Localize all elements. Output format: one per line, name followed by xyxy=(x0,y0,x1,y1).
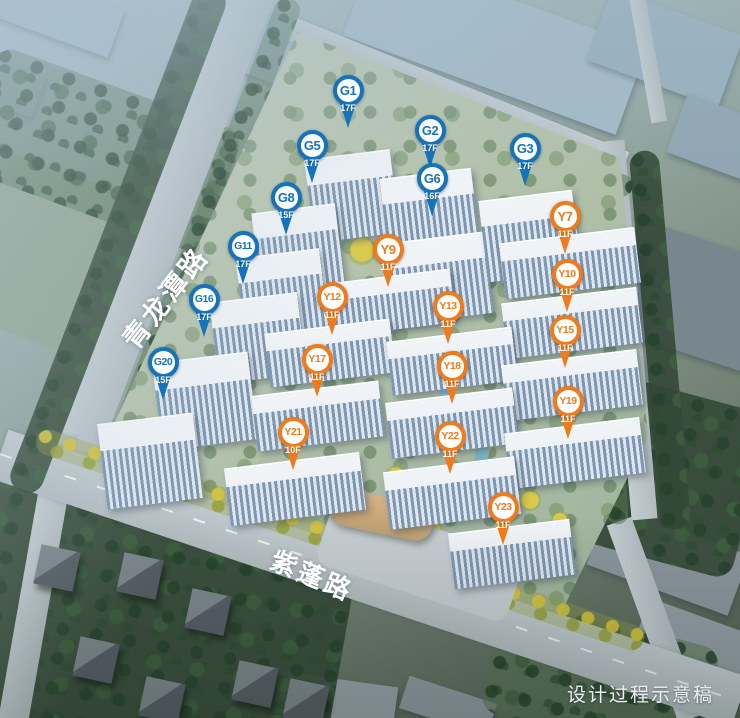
pin-floor-label: 16F xyxy=(414,192,450,201)
map-pin-y10[interactable]: Y1011F xyxy=(549,259,585,290)
map-pin-y15[interactable]: Y1511F xyxy=(547,315,583,346)
city-tower xyxy=(184,588,231,635)
pin-building-label: Y17 xyxy=(308,354,325,365)
map-pin-y21[interactable]: Y2110F xyxy=(275,417,311,448)
pin-bubble: Y7 xyxy=(550,201,581,232)
pin-bubble: G6 xyxy=(417,163,448,194)
map-pin-g3[interactable]: G317F xyxy=(507,133,543,164)
pin-building-label: G5 xyxy=(304,139,320,152)
pin-building-label: Y22 xyxy=(441,431,458,442)
map-pin-g6[interactable]: G616F xyxy=(414,163,450,194)
pin-floor-label: 15F xyxy=(145,376,181,385)
map-pin-g5[interactable]: G517F xyxy=(294,130,330,161)
pin-floor-label: 11F xyxy=(370,263,406,272)
pin-floor-label: 11F xyxy=(547,230,583,239)
pin-bubble: G16 xyxy=(189,284,220,315)
map-pin-g8[interactable]: G815F xyxy=(268,182,304,213)
pin-building-label: G16 xyxy=(195,294,213,305)
pin-floor-label: 17F xyxy=(412,144,448,153)
pin-building-label: Y15 xyxy=(556,325,573,336)
pin-floor-label: 10F xyxy=(275,446,311,455)
city-tower xyxy=(116,552,163,599)
city-roof xyxy=(0,0,125,58)
pin-floor-label: 11F xyxy=(485,521,521,530)
pin-bubble: Y17 xyxy=(302,344,333,375)
pin-bubble: G5 xyxy=(297,130,328,161)
pin-building-label: Y13 xyxy=(439,301,456,312)
pin-floor-label: 11F xyxy=(434,380,470,389)
pin-bubble: G20 xyxy=(148,347,179,378)
map-pin-g1[interactable]: G117F xyxy=(330,75,366,106)
map-pin-y13[interactable]: Y1311F xyxy=(430,291,466,322)
pin-building-label: Y10 xyxy=(558,269,575,280)
pin-floor-label: 17F xyxy=(330,104,366,113)
pin-bubble: G11 xyxy=(228,231,259,262)
pin-bubble: Y19 xyxy=(553,386,584,417)
pin-bubble: Y23 xyxy=(488,492,519,523)
city-tower xyxy=(282,678,329,718)
tree-cluster xyxy=(519,489,541,511)
pin-floor-label: 11F xyxy=(550,415,586,424)
pin-floor-label: 11F xyxy=(314,311,350,320)
pin-building-label: Y9 xyxy=(381,243,396,256)
pin-building-label: G2 xyxy=(422,124,438,137)
pin-building-label: Y21 xyxy=(284,427,301,438)
pin-floor-label: 17F xyxy=(225,260,261,269)
pin-building-label: G8 xyxy=(278,191,294,204)
pin-bubble: G2 xyxy=(415,115,446,146)
pin-building-label: Y23 xyxy=(494,502,511,513)
map-pin-g20[interactable]: G2015F xyxy=(145,347,181,378)
pin-building-label: G20 xyxy=(154,357,172,368)
city-roof xyxy=(666,94,740,186)
pin-floor-label: 11F xyxy=(430,320,466,329)
building xyxy=(97,412,203,509)
city-tower xyxy=(72,636,119,683)
pin-bubble: Y18 xyxy=(437,351,468,382)
pin-bubble: Y9 xyxy=(373,234,404,265)
pin-building-label: Y12 xyxy=(323,292,340,303)
background-render xyxy=(0,0,740,718)
city-tower xyxy=(33,544,80,591)
pin-floor-label: 15F xyxy=(268,211,304,220)
pin-bubble: Y22 xyxy=(435,421,466,452)
pin-building-label: Y18 xyxy=(443,361,460,372)
pin-floor-label: 17F xyxy=(294,159,330,168)
city-tower xyxy=(138,676,185,718)
pin-building-label: Y7 xyxy=(558,210,573,223)
map-pin-g2[interactable]: G217F xyxy=(412,115,448,146)
map-pin-y7[interactable]: Y711F xyxy=(547,201,583,232)
map-pin-g16[interactable]: G1617F xyxy=(186,284,222,315)
pin-building-label: G11 xyxy=(234,241,252,252)
pin-bubble: G8 xyxy=(271,182,302,213)
map-pin-y17[interactable]: Y1711F xyxy=(299,344,335,375)
pin-floor-label: 17F xyxy=(507,162,543,171)
city-tower xyxy=(231,660,278,707)
map-pin-y19[interactable]: Y1911F xyxy=(550,386,586,417)
pin-floor-label: 11F xyxy=(299,373,335,382)
watermark-text: 设计过程示意稿 xyxy=(567,680,714,707)
pin-floor-label: 17F xyxy=(186,313,222,322)
pin-floor-label: 11F xyxy=(432,450,468,459)
aerial-site-plan: 青龙潭路 紫蓬路 G117FG217FG317FG517FG616FG815FG… xyxy=(0,0,740,718)
pin-bubble: G3 xyxy=(510,133,541,164)
pin-bubble: Y10 xyxy=(552,259,583,290)
pin-bubble: G1 xyxy=(333,75,364,106)
pin-floor-label: 11F xyxy=(549,288,585,297)
map-pin-y18[interactable]: Y1811F xyxy=(434,351,470,382)
map-pin-y22[interactable]: Y2211F xyxy=(432,421,468,452)
pin-building-label: G1 xyxy=(340,84,356,97)
pin-bubble: Y15 xyxy=(550,315,581,346)
map-pin-y9[interactable]: Y911F xyxy=(370,234,406,265)
pin-building-label: G6 xyxy=(424,172,440,185)
pin-building-label: Y19 xyxy=(559,396,576,407)
map-pin-y12[interactable]: Y1211F xyxy=(314,282,350,313)
pin-bubble: Y13 xyxy=(433,291,464,322)
pin-floor-label: 11F xyxy=(547,344,583,353)
pin-bubble: Y12 xyxy=(317,282,348,313)
map-pin-y23[interactable]: Y2311F xyxy=(485,492,521,523)
map-pin-g11[interactable]: G1117F xyxy=(225,231,261,262)
pin-building-label: G3 xyxy=(517,142,533,155)
pin-bubble: Y21 xyxy=(278,417,309,448)
